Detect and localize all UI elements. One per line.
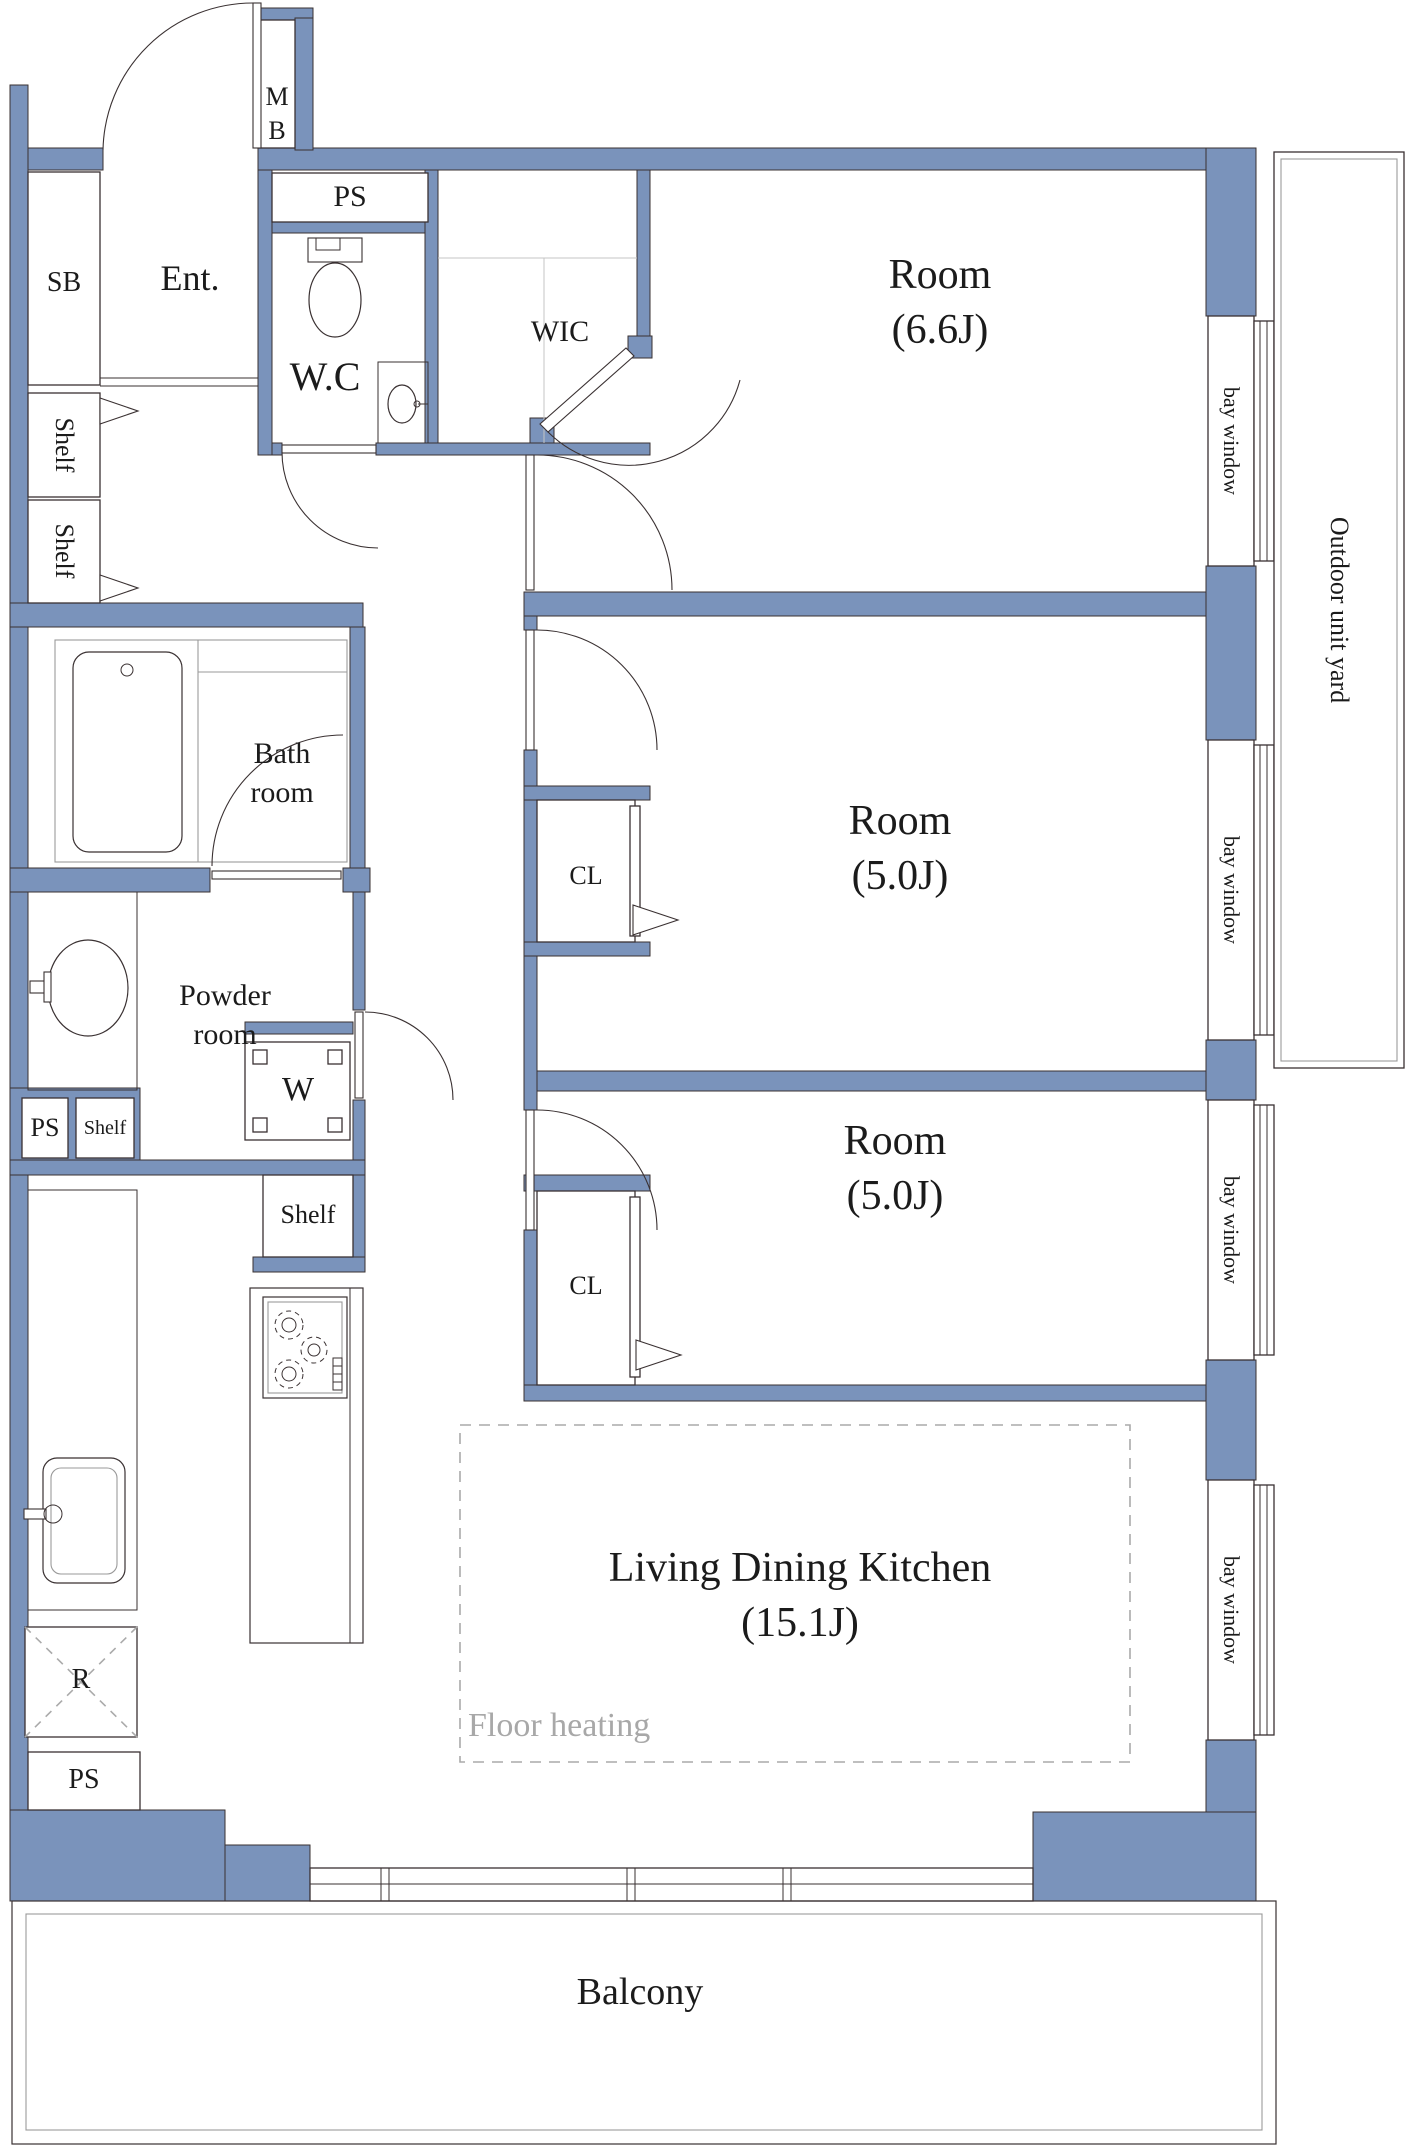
wc-label: W.C: [265, 352, 385, 402]
room2-name: Room: [849, 794, 952, 849]
entrance-label: Ent.: [130, 255, 250, 301]
closet-lower-label: CL: [556, 1266, 616, 1306]
ldk-label: Living Dining Kitchen (15.1J): [570, 1538, 1030, 1654]
wc-door: [282, 445, 376, 453]
room3-size: (5.0J): [847, 1169, 944, 1224]
ldk-name: Living Dining Kitchen: [609, 1541, 992, 1596]
wic-door: [540, 348, 634, 432]
room2-door: [526, 630, 534, 750]
shelf-kitchen-label: Shelf: [268, 1196, 348, 1234]
closet-middle-arrow: [633, 905, 678, 935]
room1-door: [526, 455, 534, 590]
shelf-hall-lower-label: Shelf: [44, 501, 84, 601]
wc-basin-icon: [378, 362, 428, 443]
bathroom-door: [212, 871, 341, 879]
floor-heating-label: Floor heating: [468, 1702, 728, 1750]
shelf-upper-arrow: [100, 398, 138, 424]
bay-window-1-label: bay window: [1216, 371, 1246, 511]
room3-name: Room: [844, 1114, 947, 1169]
balcony-label: Balcony: [520, 1968, 760, 2018]
floor-plan-drawing: [0, 0, 1417, 2148]
pipe-space-wc-label: PS: [310, 177, 390, 215]
room2-label: Room (5.0J): [750, 793, 1050, 905]
ldk-size: (15.1J): [741, 1596, 859, 1651]
kitchen-island: [250, 1288, 363, 1643]
entrance-door: [253, 3, 261, 148]
room1-label: Room (6.6J): [790, 245, 1090, 360]
pipe-space-kitchen-label: PS: [25, 1109, 65, 1147]
kitchen-counter: [24, 1190, 137, 1610]
refrigerator-label: R: [56, 1660, 106, 1700]
outdoor-unit-yard-label: Outdoor unit yard: [1321, 480, 1357, 740]
powder-room-label: Powder room: [165, 976, 285, 1054]
floor-plan: MB Ent. SB PS W.C WIC Shelf Shelf Bath r…: [0, 0, 1417, 2148]
washing-machine-label: W: [278, 1068, 318, 1112]
meter-box-label: MB: [262, 78, 292, 150]
room3-door: [526, 1110, 534, 1230]
bay-window-3-label: bay window: [1216, 1160, 1246, 1300]
room3-label: Room (5.0J): [745, 1113, 1045, 1225]
closet-middle-label: CL: [556, 856, 616, 896]
shelf-hall-upper-label: Shelf: [44, 395, 84, 495]
powder-room-door: [355, 1012, 363, 1098]
bay-window-2-label: bay window: [1216, 820, 1246, 960]
storage-boxes: [22, 20, 640, 1810]
wic-label: WIC: [510, 310, 610, 352]
closet-lower-arrow: [636, 1340, 681, 1370]
entrance-step-line: [100, 378, 258, 386]
room1-size: (6.6J): [892, 303, 989, 358]
room2-size: (5.0J): [852, 849, 949, 904]
shelf-lower-arrow: [100, 575, 138, 601]
toilet-icon: [308, 238, 362, 337]
bay-windows: [1208, 316, 1274, 1740]
shelf-kitchen-small-label: Shelf: [77, 1111, 133, 1145]
vanity-sink-icon: [28, 892, 137, 1090]
bathroom-label: Bath room: [237, 734, 327, 812]
bay-window-4-label: bay window: [1216, 1540, 1246, 1680]
shoe-box-label: SB: [39, 263, 89, 303]
pipe-space-bottom-label: PS: [44, 1760, 124, 1800]
room1-name: Room: [889, 248, 992, 303]
